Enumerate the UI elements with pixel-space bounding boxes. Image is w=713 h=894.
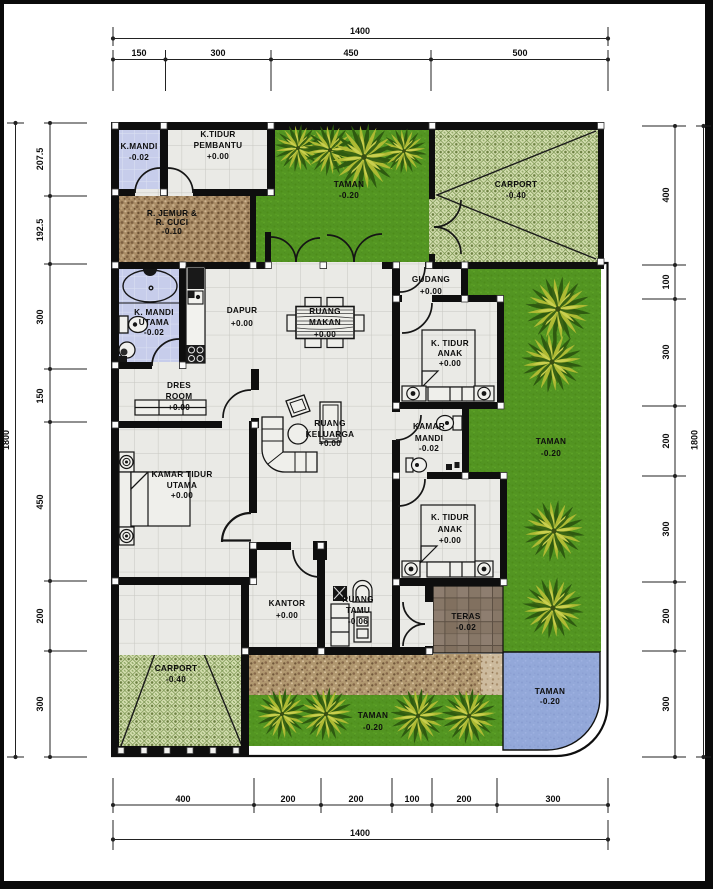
svg-text:TAMAN: TAMAN bbox=[535, 687, 565, 696]
svg-text:-0.20: -0.20 bbox=[541, 449, 561, 458]
svg-text:PEMBANTU: PEMBANTU bbox=[194, 141, 243, 150]
svg-text:-0.40: -0.40 bbox=[166, 675, 186, 684]
svg-text:+0.00: +0.00 bbox=[420, 287, 442, 296]
svg-text:1800: 1800 bbox=[1, 430, 11, 450]
svg-text:300: 300 bbox=[545, 794, 560, 804]
svg-text:1800: 1800 bbox=[690, 430, 700, 450]
svg-text:UTAMA: UTAMA bbox=[139, 318, 169, 327]
svg-text:ANAK: ANAK bbox=[438, 525, 463, 534]
svg-text:-0.02: -0.02 bbox=[456, 623, 476, 632]
svg-text:+0.00: +0.00 bbox=[168, 403, 190, 412]
svg-text:-0.02: -0.02 bbox=[419, 444, 439, 453]
svg-text:KAMAR: KAMAR bbox=[413, 422, 445, 431]
svg-text:300: 300 bbox=[35, 696, 45, 711]
svg-text:K. TIDUR: K. TIDUR bbox=[431, 513, 469, 522]
svg-text:CARPORT: CARPORT bbox=[155, 664, 198, 673]
svg-text:+0.00: +0.00 bbox=[207, 152, 229, 161]
svg-text:300: 300 bbox=[661, 344, 671, 359]
svg-text:ROOM: ROOM bbox=[166, 392, 193, 401]
svg-text:K.MANDI: K.MANDI bbox=[120, 142, 157, 151]
svg-text:200: 200 bbox=[661, 608, 671, 623]
svg-text:450: 450 bbox=[343, 48, 358, 58]
svg-text:200: 200 bbox=[280, 794, 295, 804]
svg-text:CARPORT: CARPORT bbox=[495, 180, 538, 189]
svg-text:GUDANG: GUDANG bbox=[412, 275, 450, 284]
svg-text:300: 300 bbox=[210, 48, 225, 58]
svg-text:-0.10: -0.10 bbox=[162, 227, 182, 236]
svg-text:1400: 1400 bbox=[350, 26, 370, 36]
svg-text:-0.06: -0.06 bbox=[348, 617, 368, 626]
svg-text:150: 150 bbox=[131, 48, 146, 58]
svg-text:400: 400 bbox=[661, 187, 671, 202]
svg-text:192.5: 192.5 bbox=[35, 219, 45, 242]
svg-text:400: 400 bbox=[175, 794, 190, 804]
svg-text:-0.20: -0.20 bbox=[363, 723, 383, 732]
svg-text:-0.02: -0.02 bbox=[144, 328, 164, 337]
svg-text:1400: 1400 bbox=[350, 828, 370, 838]
svg-text:DRES: DRES bbox=[167, 381, 191, 390]
svg-text:RUANG: RUANG bbox=[342, 595, 374, 604]
svg-text:+0.00: +0.00 bbox=[231, 319, 253, 328]
svg-text:300: 300 bbox=[661, 521, 671, 536]
svg-text:150: 150 bbox=[35, 388, 45, 403]
svg-text:TERAS: TERAS bbox=[451, 612, 480, 621]
svg-text:-0.20: -0.20 bbox=[540, 697, 560, 706]
svg-text:TAMAN: TAMAN bbox=[536, 437, 566, 446]
svg-text:TAMAN: TAMAN bbox=[334, 180, 364, 189]
svg-text:UTAMA: UTAMA bbox=[167, 481, 197, 490]
svg-text:MANDI: MANDI bbox=[415, 434, 443, 443]
svg-text:200: 200 bbox=[661, 433, 671, 448]
svg-text:K.TIDUR: K.TIDUR bbox=[200, 130, 235, 139]
svg-text:+0.00: +0.00 bbox=[276, 611, 298, 620]
svg-text:100: 100 bbox=[404, 794, 419, 804]
svg-text:-0.20: -0.20 bbox=[339, 191, 359, 200]
svg-text:RUANG: RUANG bbox=[314, 419, 346, 428]
svg-text:300: 300 bbox=[661, 696, 671, 711]
svg-text:+0.00: +0.00 bbox=[171, 491, 193, 500]
svg-text:K. MANDI: K. MANDI bbox=[134, 308, 174, 317]
svg-text:R. JEMUR &: R. JEMUR & bbox=[147, 209, 197, 218]
svg-text:KAMAR TIDUR: KAMAR TIDUR bbox=[151, 470, 212, 479]
svg-text:MAKAN: MAKAN bbox=[309, 318, 341, 327]
svg-text:DAPUR: DAPUR bbox=[227, 306, 258, 315]
svg-text:+0.00: +0.00 bbox=[319, 439, 341, 448]
svg-text:100: 100 bbox=[661, 274, 671, 289]
svg-text:450: 450 bbox=[35, 494, 45, 509]
svg-text:+0.00: +0.00 bbox=[439, 536, 461, 545]
svg-text:-0.02: -0.02 bbox=[129, 153, 149, 162]
svg-text:500: 500 bbox=[512, 48, 527, 58]
svg-text:+0.00: +0.00 bbox=[314, 330, 336, 339]
svg-text:207.5: 207.5 bbox=[35, 148, 45, 171]
svg-text:ANAK: ANAK bbox=[438, 349, 463, 358]
svg-text:RUANG: RUANG bbox=[309, 307, 341, 316]
svg-text:-0.40: -0.40 bbox=[506, 191, 526, 200]
svg-text:KANTOR: KANTOR bbox=[269, 599, 306, 608]
svg-text:200: 200 bbox=[348, 794, 363, 804]
svg-text:200: 200 bbox=[456, 794, 471, 804]
svg-text:KELUARGA: KELUARGA bbox=[306, 430, 355, 439]
svg-text:200: 200 bbox=[35, 608, 45, 623]
svg-text:+0.00: +0.00 bbox=[439, 359, 461, 368]
svg-text:TAMU: TAMU bbox=[346, 606, 370, 615]
svg-text:R. CUCI: R. CUCI bbox=[156, 218, 189, 227]
svg-text:300: 300 bbox=[35, 309, 45, 324]
svg-text:TAMAN: TAMAN bbox=[358, 711, 388, 720]
svg-text:K. TIDUR: K. TIDUR bbox=[431, 339, 469, 348]
